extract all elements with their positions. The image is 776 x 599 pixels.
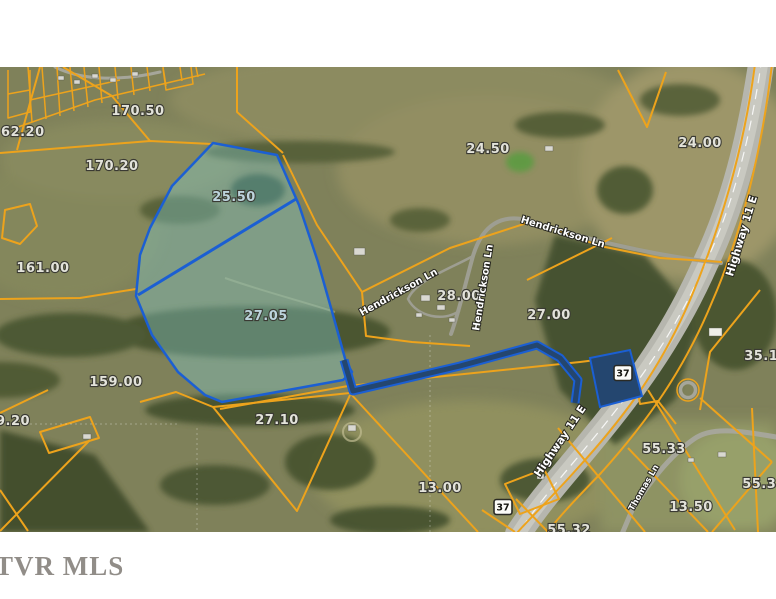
parcel-map-svg: 170.50 62.20 170.20 25.50 24.50 24.00 16…: [0, 67, 776, 532]
parcel-label-161-00: 161.00: [16, 261, 69, 276]
parcel-label-35-10: 35.10: [744, 349, 776, 364]
parcel-label-27-10: 27.10: [255, 413, 299, 428]
parcel-label-25-50: 25.50: [212, 190, 256, 205]
parcel-label-170-20: 170.20: [85, 159, 138, 174]
screenshot-root: { "watermark": "TVR MLS", "map": { "parc…: [0, 0, 776, 599]
parcel-label-55-33: 55.33: [642, 442, 686, 457]
parcel-label-24-00: 24.00: [678, 136, 722, 151]
route-37-shield-south-text: 37: [496, 503, 509, 514]
parcel-label-55-34: 55.34: [742, 477, 776, 492]
parcel-label-28-00: 28.00: [437, 289, 481, 304]
parcel-map-canvas[interactable]: 170.50 62.20 170.20 25.50 24.50 24.00 16…: [0, 67, 776, 532]
parcel-label-9-20: 9.20: [0, 414, 30, 429]
parcel-label-13-00: 13.00: [418, 481, 462, 496]
parcel-label-24-50: 24.50: [466, 142, 510, 157]
parcel-label-13-50: 13.50: [669, 500, 713, 515]
parcel-label-27-00: 27.00: [527, 308, 571, 323]
parcel-label-170-50: 170.50: [111, 104, 164, 119]
tvr-mls-watermark: TVR MLS: [0, 551, 124, 582]
parcel-label-159-00: 159.00: [89, 375, 142, 390]
parcel-label-55-32: 55.32: [547, 523, 591, 532]
route-37-shield-south: 37: [494, 500, 512, 515]
route-37-shield-north: 37: [614, 366, 632, 381]
parcel-label-27-05: 27.05: [244, 309, 288, 324]
route-37-shield-north-text: 37: [616, 369, 629, 380]
parcel-label-62-20: 62.20: [1, 125, 45, 140]
